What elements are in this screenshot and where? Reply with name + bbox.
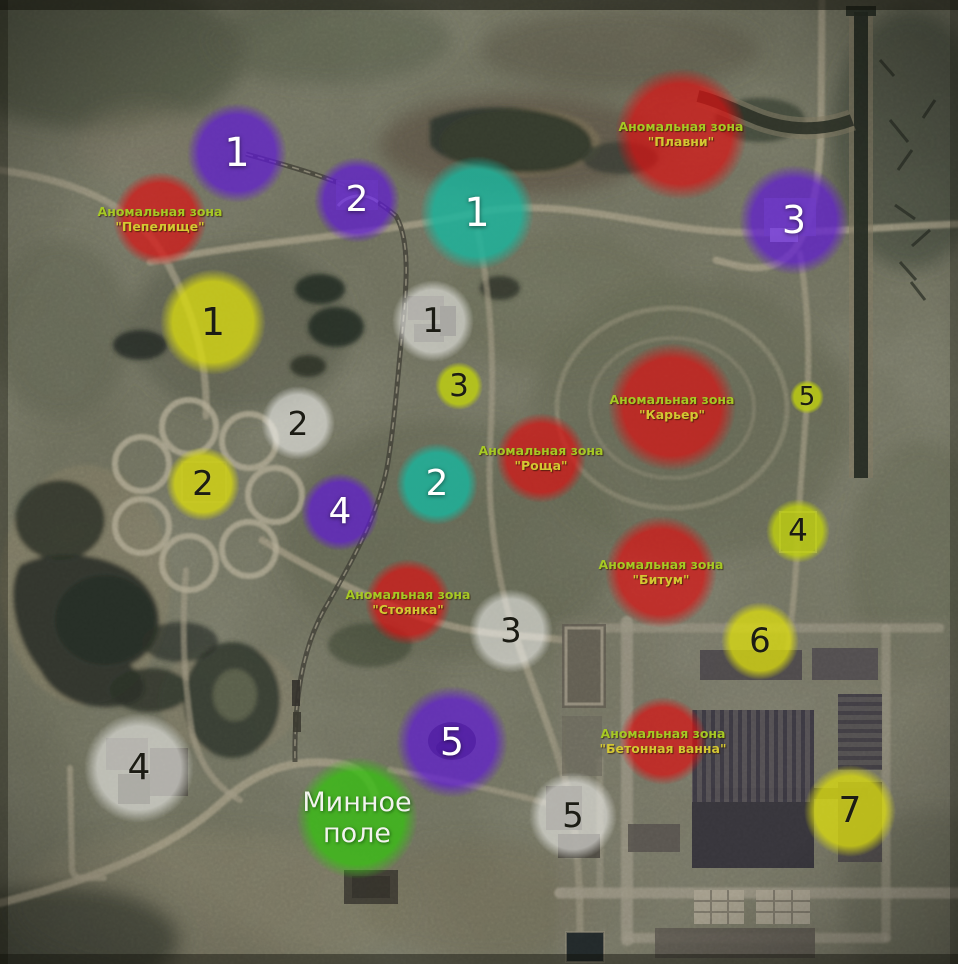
poi-marker-number: 2 xyxy=(346,182,369,218)
poi-marker-number: 6 xyxy=(749,624,771,658)
poi-marker-purple-4: 4 xyxy=(301,473,379,551)
poi-marker-white-2: 2 xyxy=(261,386,335,460)
poi-marker-number: 1 xyxy=(201,303,225,341)
poi-marker-white-3: 3 xyxy=(469,589,553,673)
poi-marker-number: 5 xyxy=(440,723,464,761)
poi-marker-number: 2 xyxy=(288,407,309,440)
poi-marker-white-1: 1 xyxy=(392,280,474,362)
poi-marker-white-5: 5 xyxy=(529,772,617,860)
poi-marker-purple-5: 5 xyxy=(396,686,508,798)
minefield-label: Минноеполе xyxy=(302,787,411,849)
poi-marker-number: 7 xyxy=(839,793,862,829)
poi-marker-number: 4 xyxy=(788,516,808,547)
minefield-zone-circle: Минноеполе xyxy=(296,757,418,879)
poi-marker-yellow-2: 2 xyxy=(166,447,240,521)
poi-marker-number: 5 xyxy=(799,384,816,410)
poi-marker-number: 2 xyxy=(426,466,449,502)
poi-marker-yellow-4: 4 xyxy=(766,499,830,563)
poi-marker-number: 3 xyxy=(449,371,469,402)
poi-marker-yellow-7: 7 xyxy=(804,765,896,857)
poi-marker-white-4: 4 xyxy=(84,713,194,823)
poi-marker-number: 5 xyxy=(562,799,584,833)
poi-marker-purple-1: 1 xyxy=(187,103,287,203)
poi-marker-teal-1: 1 xyxy=(420,156,534,270)
poi-marker-number: 1 xyxy=(464,193,489,233)
poi-marker-number: 1 xyxy=(422,304,444,338)
poi-marker-number: 3 xyxy=(782,201,806,239)
poi-marker-yellow-6: 6 xyxy=(721,602,799,680)
poi-marker-yellow-1: 1 xyxy=(160,269,266,375)
poi-marker-yellow-5: 5 xyxy=(790,380,824,414)
minefield-label-line1: Минное xyxy=(302,787,411,818)
poi-marker-number: 1 xyxy=(224,133,249,173)
poi-marker-number: 3 xyxy=(500,614,522,648)
poi-marker-purple-3: 3 xyxy=(739,165,849,275)
markers-layer: 1234512123456712345Минноеполе xyxy=(0,0,958,964)
minefield-label-line2: поле xyxy=(302,818,411,849)
poi-marker-teal-2: 2 xyxy=(396,443,478,525)
poi-marker-yellow-3: 3 xyxy=(435,362,483,410)
poi-marker-number: 4 xyxy=(128,750,151,786)
poi-marker-purple-2: 2 xyxy=(314,157,400,243)
poi-marker-number: 4 xyxy=(329,494,352,530)
poi-marker-number: 2 xyxy=(192,467,214,501)
anomaly-map: Аномальная зона"Пепелище"Аномальная зона… xyxy=(0,0,958,964)
